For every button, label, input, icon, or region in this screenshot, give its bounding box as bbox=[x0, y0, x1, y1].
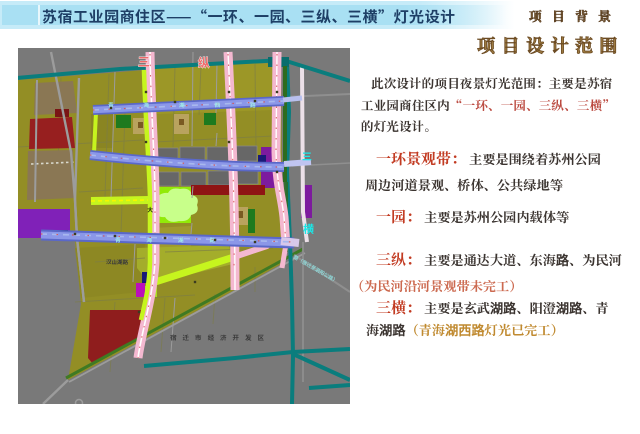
svg-text:青海湖西路: 青海湖西路 bbox=[108, 101, 286, 109]
svg-text:纵: 纵 bbox=[198, 54, 210, 71]
svg-text:大: 大 bbox=[147, 205, 154, 214]
svg-text:汉山湖路: 汉山湖路 bbox=[106, 258, 129, 266]
svg-text:三: 三 bbox=[138, 53, 150, 70]
svg-text:横: 横 bbox=[303, 221, 314, 237]
svg-text:三: 三 bbox=[302, 148, 312, 163]
svg-text:青海湖路: 青海湖路 bbox=[115, 236, 241, 244]
svg-text:宿迁市经济开发区: 宿迁市经济开发区 bbox=[169, 332, 270, 342]
